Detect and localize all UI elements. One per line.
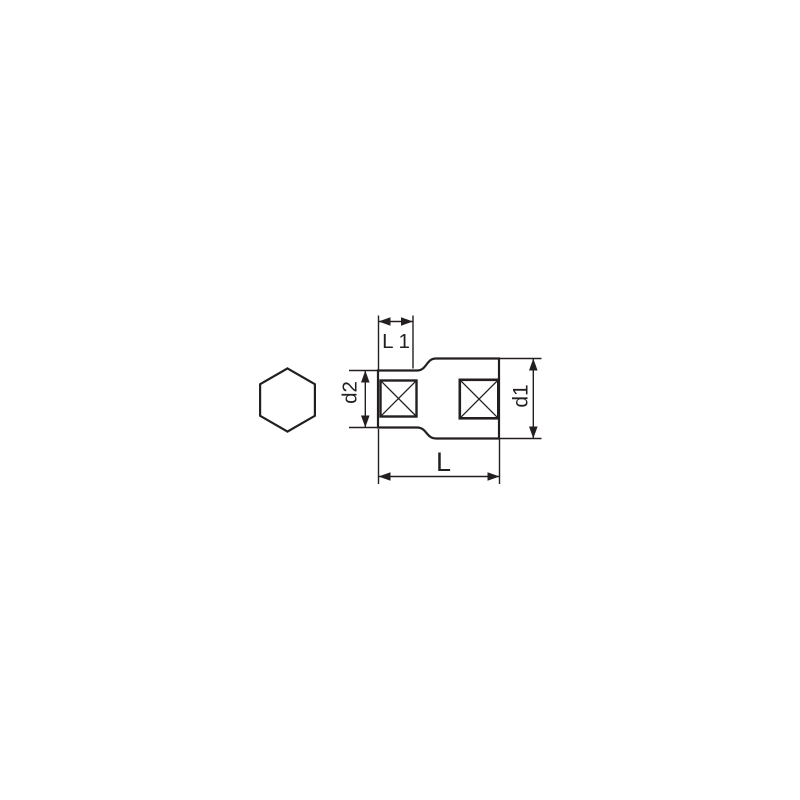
l-arrowhead-left bbox=[379, 472, 391, 481]
l-arrowhead-right bbox=[488, 472, 500, 481]
drawing-canvas: L 1 d2 d1 L bbox=[0, 0, 800, 800]
dim-label-d2: d2 bbox=[339, 381, 362, 404]
d1-arrowhead-top bbox=[529, 359, 538, 371]
hex-socket-end-view bbox=[260, 368, 315, 431]
dim-label-d1: d1 bbox=[510, 384, 533, 407]
l1-arrowhead-left bbox=[379, 317, 391, 326]
d2-arrowhead-top bbox=[361, 371, 370, 383]
d2-arrowhead-bottom bbox=[361, 416, 370, 428]
dim-label-l: L bbox=[436, 447, 451, 477]
l1-arrowhead-right bbox=[401, 317, 413, 326]
d1-arrowhead-bottom bbox=[529, 427, 538, 439]
socket-dimension-diagram: L 1 d2 d1 L bbox=[0, 0, 800, 800]
dim-label-l1: L 1 bbox=[382, 330, 410, 353]
socket-body-outline bbox=[378, 359, 499, 439]
